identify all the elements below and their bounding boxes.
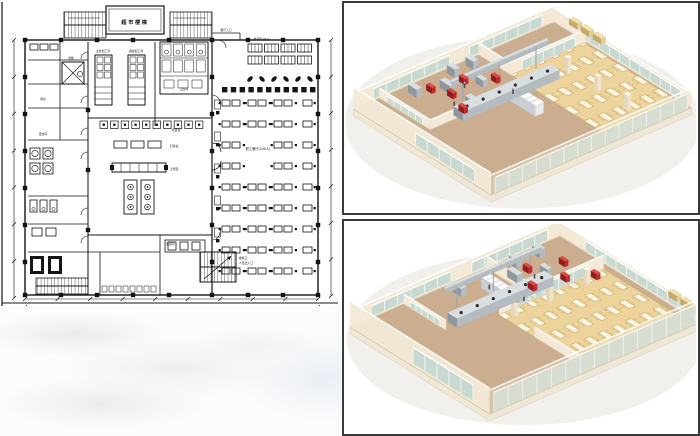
label-staple-room: 主食加工间 (96, 49, 110, 53)
label-entrance-top: 餐厅入口 (220, 28, 231, 32)
render-bottom-isometric-view (346, 224, 696, 433)
label-dining-hall: 职工餐厅(240人) (246, 146, 271, 151)
label-dressing: 更衣间 (39, 132, 48, 136)
label-toilet: 卫生间 (180, 87, 189, 91)
label-side-room: 副食加工间 (129, 49, 143, 53)
label-serving-counter: 售饭台 (172, 128, 181, 132)
screenshot-root: { "floor_plan": { "title_block": "超市楼梯",… (0, 0, 700, 436)
render-panel-top (342, 1, 700, 215)
label-elevator: 货梯 (68, 56, 74, 60)
title-block-label: 超市楼梯 (120, 18, 148, 26)
blurred-empty-region (0, 306, 341, 436)
label-stair-exit-1: 楼梯口 (239, 256, 248, 260)
floor-plan-drawing: 超市楼梯 主食加工间 副食加工间 卫生间 休息区(24人) 餐厅入口 售饭台 打… (0, 0, 340, 312)
label-wash-area: 洗消间 (166, 242, 175, 246)
label-cook-area: 烹饪区 (170, 167, 179, 171)
render-panel-bottom (342, 219, 700, 436)
label-prep-table: 打荷台 (170, 144, 179, 148)
label-rest-area: 休息区(24人) (254, 37, 271, 41)
label-storage: 库房 (40, 97, 46, 101)
floor-plan-panel: 超市楼梯 主食加工间 副食加工间 卫生间 休息区(24人) 餐厅入口 售饭台 打… (0, 0, 340, 312)
label-stair-exit-2: 人员出入口 (239, 261, 253, 265)
render-top-isometric-view (346, 6, 696, 212)
